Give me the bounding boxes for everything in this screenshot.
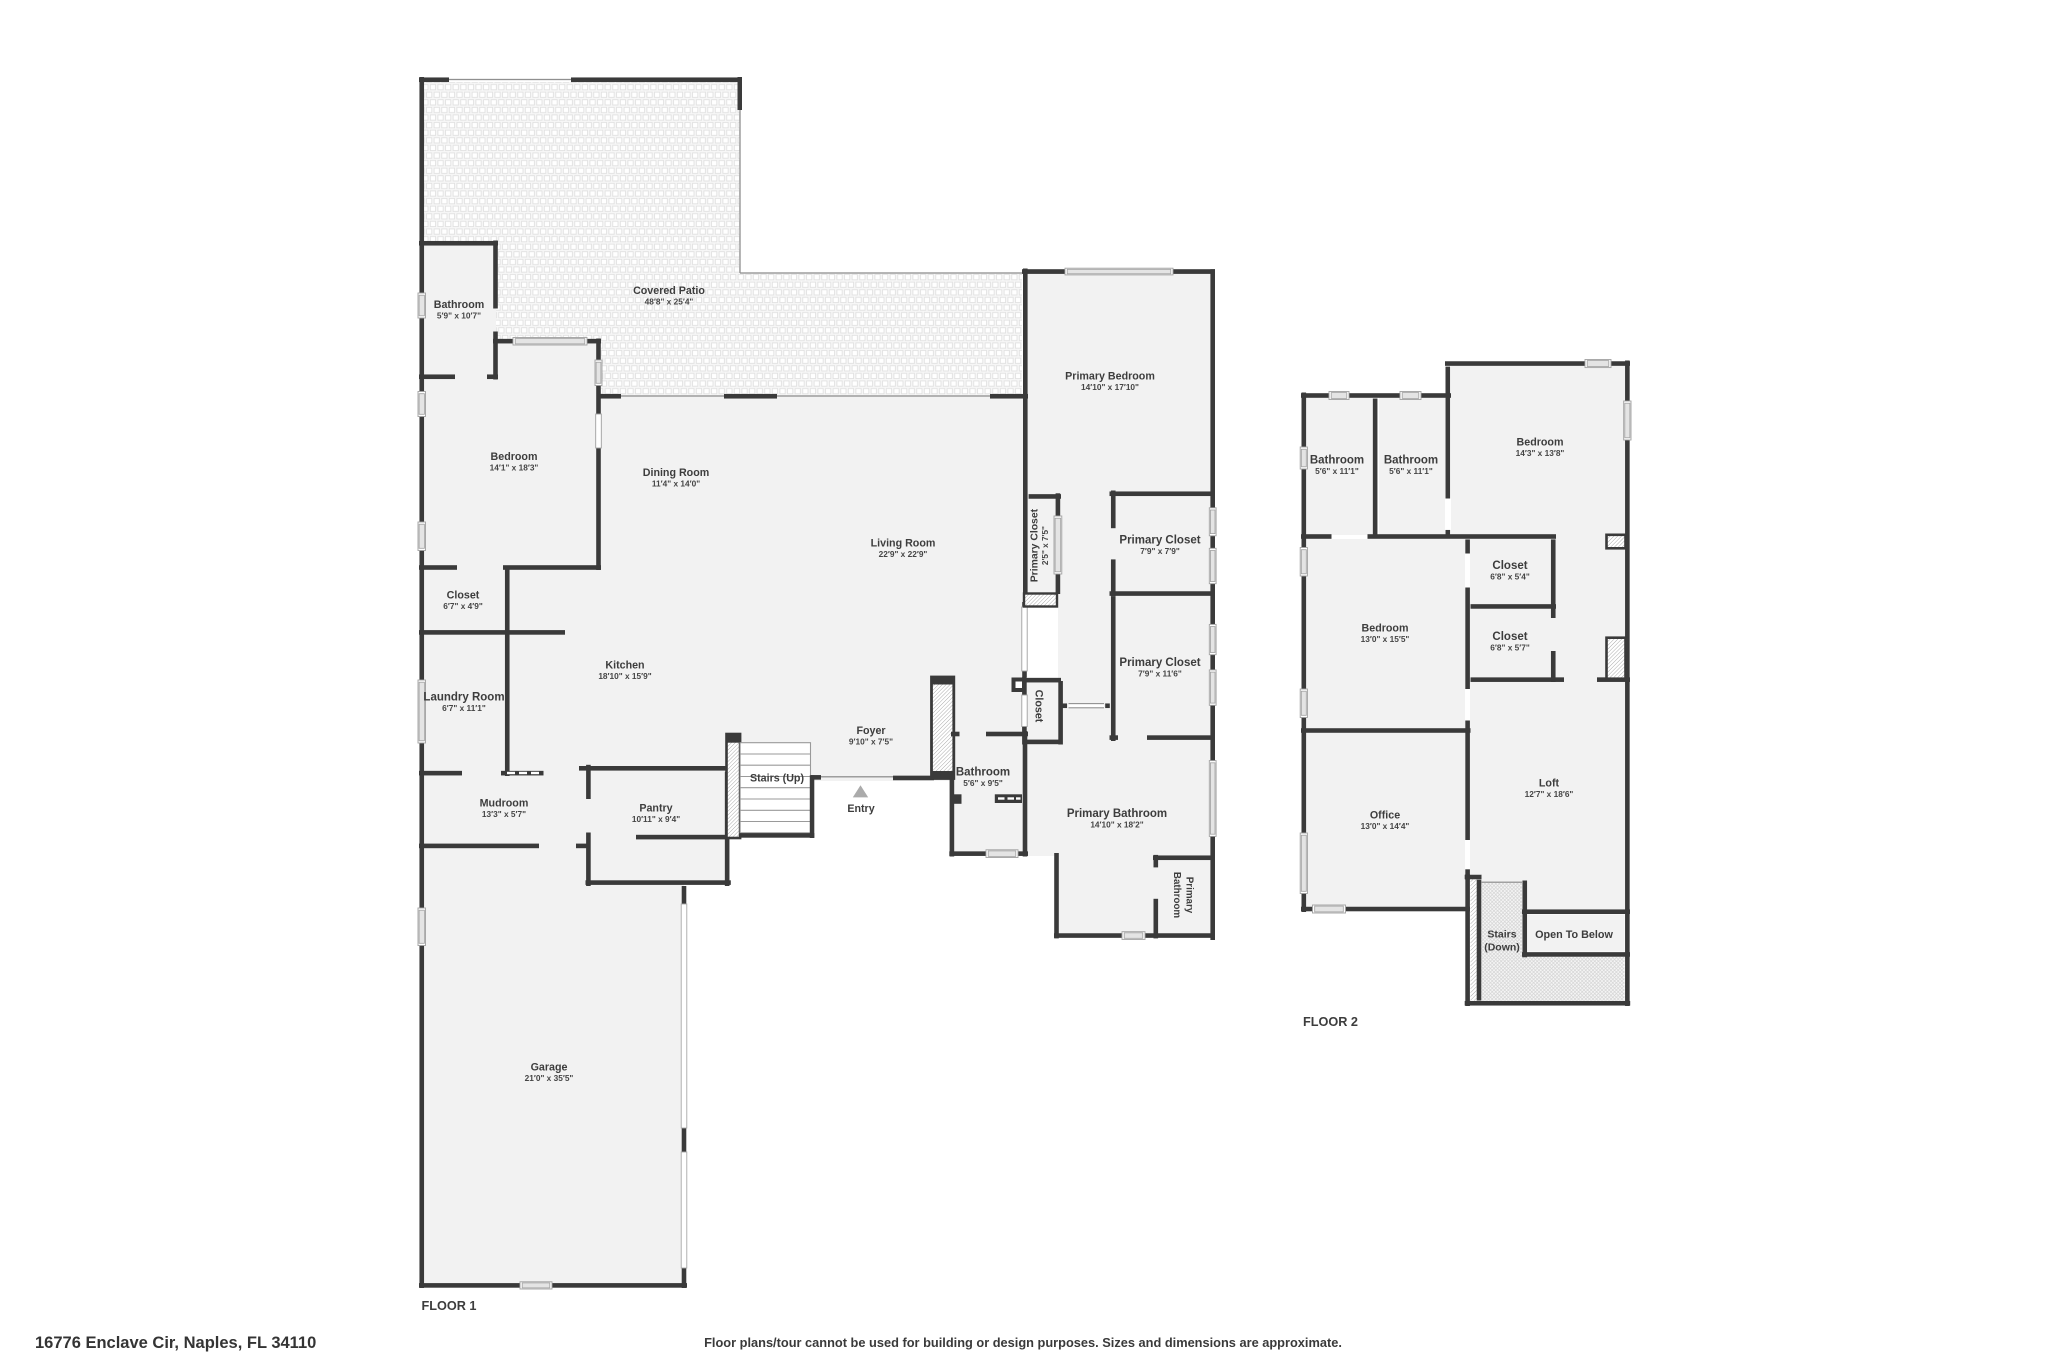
svg-text:Covered Patio: Covered Patio <box>633 285 705 297</box>
svg-text:2′5" x 7′5": 2′5" x 7′5" <box>1041 526 1050 565</box>
svg-text:22′9" x 22′9": 22′9" x 22′9" <box>879 549 928 559</box>
svg-text:7′9" x 7′9": 7′9" x 7′9" <box>1140 546 1180 556</box>
svg-text:14′10" x 18′2": 14′10" x 18′2" <box>1090 819 1143 829</box>
svg-text:5′9" x 10′7": 5′9" x 10′7" <box>437 310 481 320</box>
svg-text:Entry: Entry <box>847 803 874 815</box>
svg-text:5′6" x 11′1": 5′6" x 11′1" <box>1389 466 1433 476</box>
svg-text:9′10" x 7′5": 9′10" x 7′5" <box>849 736 893 746</box>
svg-text:13′0" x 14′4": 13′0" x 14′4" <box>1361 821 1410 831</box>
svg-text:Living Room: Living Room <box>871 538 936 550</box>
svg-text:5′6" x 9′5": 5′6" x 9′5" <box>963 778 1003 788</box>
svg-text:Office: Office <box>1370 810 1400 822</box>
svg-text:6′8" x 5′7": 6′8" x 5′7" <box>1490 642 1530 652</box>
svg-text:18′10" x 15′9": 18′10" x 15′9" <box>598 671 651 681</box>
svg-text:(Down): (Down) <box>1484 942 1520 954</box>
svg-text:5′6" x 11′1": 5′6" x 11′1" <box>1315 466 1359 476</box>
svg-text:Garage: Garage <box>531 1062 568 1074</box>
svg-text:6′8" x 5′4": 6′8" x 5′4" <box>1490 571 1530 581</box>
svg-text:16776 Enclave Cir, Naples, FL: 16776 Enclave Cir, Naples, FL 34110 <box>35 1334 316 1352</box>
svg-text:13′0" x 15′5": 13′0" x 15′5" <box>1361 634 1410 644</box>
svg-text:Primary Closet: Primary Closet <box>1030 508 1041 582</box>
svg-text:Bedroom: Bedroom <box>1517 437 1564 449</box>
svg-text:Stairs (Up): Stairs (Up) <box>750 773 804 785</box>
svg-text:14′3" x 13′8": 14′3" x 13′8" <box>1516 448 1565 458</box>
svg-text:12′7" x 18′6": 12′7" x 18′6" <box>1525 789 1574 799</box>
svg-text:Bedroom: Bedroom <box>1362 623 1409 635</box>
svg-text:Bathroom: Bathroom <box>956 767 1010 779</box>
svg-text:Primary: Primary <box>1184 877 1195 914</box>
svg-text:7′9" x 11′6": 7′9" x 11′6" <box>1138 668 1182 678</box>
svg-text:Bathroom: Bathroom <box>1310 455 1364 467</box>
svg-text:Primary Closet: Primary Closet <box>1119 657 1200 669</box>
svg-text:Primary Bathroom: Primary Bathroom <box>1067 808 1167 820</box>
svg-text:Laundry Room: Laundry Room <box>423 692 504 704</box>
svg-text:Primary Bedroom: Primary Bedroom <box>1065 371 1155 383</box>
svg-text:14′1" x 18′3": 14′1" x 18′3" <box>490 462 539 472</box>
svg-text:14′10" x 17′10": 14′10" x 17′10" <box>1081 382 1139 392</box>
svg-text:Primary Closet: Primary Closet <box>1119 535 1200 547</box>
svg-text:Loft: Loft <box>1539 778 1560 790</box>
svg-text:6′7" x 11′1": 6′7" x 11′1" <box>442 703 486 713</box>
svg-text:Closet: Closet <box>1033 690 1045 723</box>
svg-text:Mudroom: Mudroom <box>480 798 529 810</box>
svg-text:Kitchen: Kitchen <box>605 660 644 672</box>
svg-text:Bedroom: Bedroom <box>491 451 538 463</box>
svg-text:Pantry: Pantry <box>639 803 672 815</box>
svg-text:11′4" x 14′0": 11′4" x 14′0" <box>652 478 700 488</box>
svg-text:10′11" x 9′4": 10′11" x 9′4" <box>632 814 680 824</box>
svg-text:FLOOR 1: FLOOR 1 <box>422 1299 477 1313</box>
svg-text:6′7" x 4′9": 6′7" x 4′9" <box>443 601 483 611</box>
svg-text:Bathroom: Bathroom <box>434 299 484 311</box>
svg-text:Foyer: Foyer <box>856 725 885 737</box>
svg-text:Dining Room: Dining Room <box>643 467 710 479</box>
svg-text:FLOOR 2: FLOOR 2 <box>1303 1015 1358 1029</box>
svg-text:Closet: Closet <box>1492 560 1527 572</box>
svg-text:Bathroom: Bathroom <box>1171 872 1182 919</box>
svg-text:Stairs: Stairs <box>1487 929 1516 941</box>
svg-text:Bathroom: Bathroom <box>1384 455 1438 467</box>
svg-text:13′3" x 5′7": 13′3" x 5′7" <box>482 809 526 819</box>
svg-text:Closet: Closet <box>447 590 480 602</box>
svg-text:21′0" x 35′5": 21′0" x 35′5" <box>525 1073 574 1083</box>
svg-text:Closet: Closet <box>1492 631 1527 643</box>
svg-text:48′8" x 25′4": 48′8" x 25′4" <box>645 296 694 306</box>
svg-text:Floor plans/tour cannot be use: Floor plans/tour cannot be used for buil… <box>704 1335 1342 1350</box>
svg-text:Open To Below: Open To Below <box>1535 929 1613 941</box>
